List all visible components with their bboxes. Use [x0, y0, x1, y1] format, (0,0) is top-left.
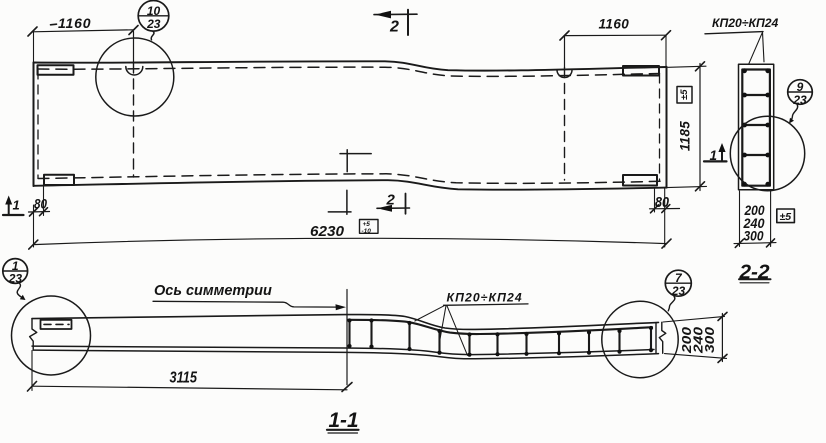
svg-text:1: 1: [710, 148, 718, 163]
svg-text:1: 1: [13, 198, 20, 213]
svg-text:23: 23: [146, 17, 161, 31]
svg-text:23: 23: [671, 284, 686, 298]
svg-text:3115: 3115: [170, 370, 198, 387]
svg-text:6230: 6230: [310, 223, 345, 240]
svg-text:Ось симметрии: Ось симметрии: [154, 283, 272, 299]
svg-text:1160: 1160: [599, 17, 630, 32]
svg-text:80: 80: [655, 194, 670, 211]
svg-text:80: 80: [34, 196, 47, 212]
svg-text:10: 10: [147, 4, 161, 18]
svg-text:1185: 1185: [678, 121, 693, 151]
svg-text:23: 23: [792, 93, 807, 107]
svg-text:1-1: 1-1: [329, 409, 359, 432]
svg-text:300: 300: [702, 326, 717, 353]
svg-text:±5: ±5: [679, 89, 690, 100]
svg-text:КП20÷КП24: КП20÷КП24: [712, 16, 779, 30]
svg-text:±5: ±5: [780, 211, 792, 223]
svg-text:1160: 1160: [58, 15, 91, 31]
svg-text:-10: -10: [362, 228, 372, 235]
svg-text:300: 300: [744, 228, 764, 244]
svg-text:КП20÷КП24: КП20÷КП24: [447, 291, 523, 305]
svg-text:2: 2: [389, 19, 399, 36]
